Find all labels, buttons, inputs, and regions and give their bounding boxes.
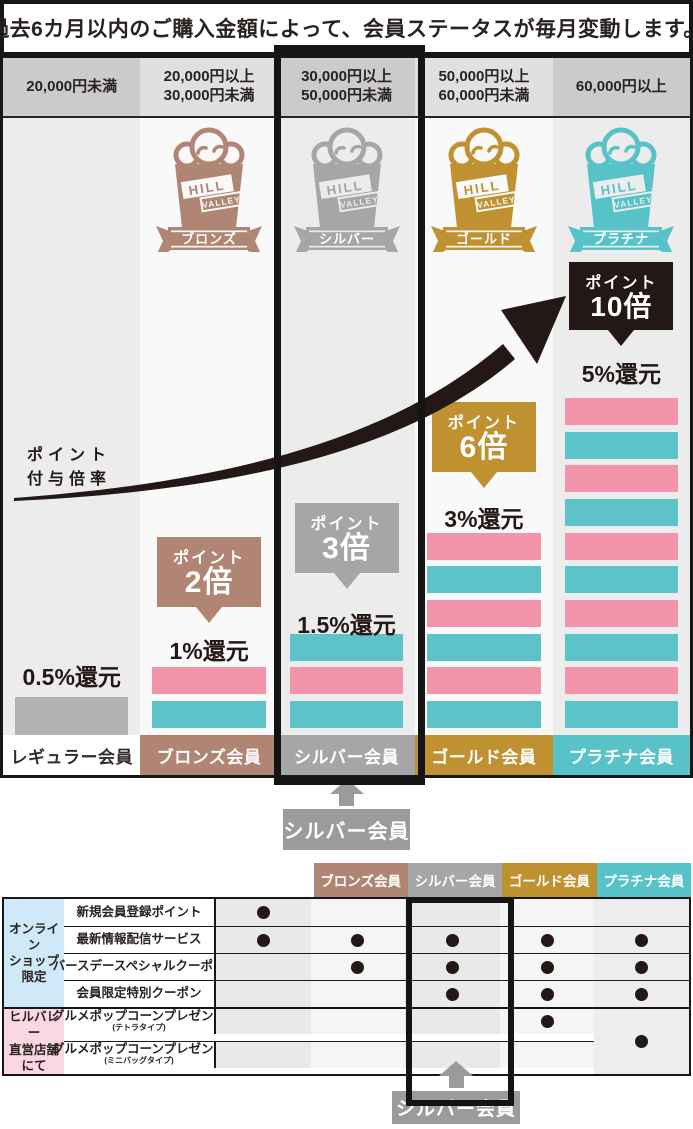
point-bars-regular (15, 118, 128, 735)
axis-label-line1: ポイント (27, 444, 111, 468)
benefit-dot (446, 934, 459, 947)
benefit-dot (635, 988, 648, 1001)
category-label-line: ショップ (9, 953, 59, 969)
benefit-cell (216, 899, 311, 926)
bubble-prefix: ポイント (432, 409, 536, 433)
purchase-range-line: 20,000円以上 (164, 68, 255, 87)
benefit-cell (311, 899, 406, 926)
silver-member-badge: シルバー会員 (392, 1091, 520, 1124)
point-bar-pink (565, 667, 678, 694)
bubble-box: ポイント2倍 (157, 537, 261, 607)
benefit-dot (351, 961, 364, 974)
benefit-name: グルメポップコーンプレゼント (52, 1010, 226, 1024)
bubble-prefix: ポイント (295, 510, 399, 534)
purchase-range-gold: 50,000円以上60,000円未満 (415, 58, 552, 118)
point-bar-pink (427, 600, 540, 627)
bubble-box: ポイント6倍 (432, 402, 536, 472)
point-bar-pink (152, 667, 265, 694)
point-multiplier-bubble-platinum: ポイント10倍 (569, 262, 673, 346)
page-title: 過去6カ月以内のご購入金額によって、会員ステータスが毎月変動します。 (0, 0, 693, 56)
benefit-dot (541, 988, 554, 1001)
point-bar-pink (427, 533, 540, 560)
member-label-bronze: ブロンズ会員 (140, 735, 277, 775)
cashback-rate-regular: 0.5%還元 (3, 658, 140, 692)
point-bar-teal (565, 701, 678, 728)
benefit-name-sub: (テトラタイプ) (112, 1024, 165, 1033)
benefit-cell (405, 953, 500, 980)
benefit-dot (446, 988, 459, 1001)
cashback-rate-platinum: 5%還元 (553, 355, 690, 389)
bubble-box: ポイント10倍 (569, 262, 673, 330)
point-bar-teal (565, 566, 678, 593)
category-label-line: オンライン (4, 921, 64, 954)
benefits-col-header-4: プラチナ会員 (597, 863, 691, 897)
main-chart: 20,000円未満0.5%還元レギュラー会員20,000円以上30,000円未満… (0, 55, 693, 778)
cashback-rate-gold: 3%還元 (415, 500, 552, 534)
benefits-table-header: レギュラー会員ブロンズ会員シルバー会員ゴールド会員プラチナ会員 (219, 863, 691, 897)
bubble-value: 10倍 (569, 293, 673, 322)
bubble-value: 2倍 (157, 568, 261, 599)
benefit-cell (311, 980, 406, 1007)
benefit-cell (405, 1007, 500, 1034)
bubble-value: 6倍 (432, 433, 536, 464)
point-bar-pink (565, 465, 678, 492)
member-label-gold: ゴールド会員 (415, 735, 552, 775)
benefit-cell (500, 899, 595, 926)
benefit-cell (216, 926, 311, 953)
benefit-name: 最新情報配信サービス (76, 933, 201, 947)
benefits-col-header-1: ブロンズ会員 (314, 863, 408, 897)
point-bar-teal (427, 634, 540, 661)
benefit-cell (594, 953, 689, 980)
up-arrow-icon (330, 779, 364, 794)
benefit-dot (351, 934, 364, 947)
bubble-pointer (334, 573, 360, 589)
purchase-range-line: 30,000円未満 (164, 87, 255, 106)
axis-label-line2: 付与倍率 (27, 468, 111, 492)
up-arrow-icon (439, 1061, 473, 1076)
benefit-cell (216, 953, 311, 980)
point-bar-teal (427, 701, 540, 728)
tier-column-silver: 30,000円以上50,000円未満 HILL VALLEY シルバー ポイント… (278, 58, 415, 775)
tier-columns: 20,000円未満0.5%還元レギュラー会員20,000円以上30,000円未満… (3, 58, 690, 775)
purchase-range-line: 20,000円未満 (26, 78, 117, 97)
benefits-col-header-0: レギュラー会員 (219, 863, 314, 897)
silver-member-callout-table: シルバー会員 (392, 1061, 520, 1124)
benefit-dot (541, 961, 554, 974)
bubble-prefix: ポイント (569, 269, 673, 293)
benefit-cell (216, 1007, 311, 1034)
benefit-name-sub: (ミニバッグタイプ) (104, 1057, 173, 1066)
up-arrow-stem (449, 1076, 464, 1088)
benefit-row-label: 会員限定特別クーポン (64, 980, 216, 1007)
bubble-pointer (608, 330, 634, 346)
point-bar-teal (427, 566, 540, 593)
point-bar-teal (565, 634, 678, 661)
benefit-dot (635, 1035, 648, 1048)
benefit-dot (541, 934, 554, 947)
category-label-line: 限定 (21, 969, 46, 985)
benefit-cell (500, 926, 595, 953)
member-label-silver: シルバー会員 (278, 735, 415, 775)
tier-column-body-platinum: HILL VALLEY プラチナ ポイント10倍5%還元 (553, 118, 690, 735)
category-label-line: にて (21, 1058, 46, 1074)
point-multiplier-bubble-bronze: ポイント2倍 (157, 537, 261, 623)
point-bar-pink (565, 398, 678, 425)
benefit-cell (311, 1007, 406, 1034)
point-bar-teal (152, 701, 265, 728)
purchase-range-line: 60,000円以上 (576, 78, 667, 97)
purchase-range-silver: 30,000円以上50,000円未満 (278, 58, 415, 118)
tier-column-body-gold: HILL VALLEY ゴールド ポイント6倍3%還元 (415, 118, 552, 735)
point-bar-pink (290, 667, 403, 694)
cashback-rate-bronze: 1%還元 (140, 632, 277, 666)
bubble-prefix: ポイント (157, 544, 261, 568)
benefit-name: 会員限定特別クーポン (76, 987, 201, 1001)
point-bars-platinum (565, 118, 678, 728)
benefit-dot (541, 1015, 554, 1028)
silver-member-badge: シルバー会員 (283, 809, 410, 850)
member-label-platinum: プラチナ会員 (553, 735, 690, 775)
purchase-range-line: 50,000円未満 (301, 87, 392, 106)
benefit-category-0: オンラインショップ限定 (4, 899, 64, 1007)
tier-column-body-silver: HILL VALLEY シルバー ポイント3倍1.5%還元 (278, 118, 415, 735)
purchase-range-bronze: 20,000円以上30,000円未満 (140, 58, 277, 118)
benefit-name: グルメポップコーンプレゼント (52, 1043, 226, 1057)
benefit-cell (594, 899, 689, 926)
axis-label-point-multiplier: ポイント 付与倍率 (27, 444, 111, 492)
benefits-col-header-3: ゴールド会員 (502, 863, 596, 897)
purchase-range-platinum: 60,000円以上 (553, 58, 690, 118)
benefit-cell (405, 899, 500, 926)
tier-column-regular: 20,000円未満0.5%還元レギュラー会員 (3, 58, 140, 775)
benefit-cell (594, 926, 689, 953)
up-arrow-stem (339, 794, 354, 806)
membership-status-infographic: 過去6カ月以内のご購入金額によって、会員ステータスが毎月変動します。 20,00… (0, 0, 693, 1129)
benefit-cell (500, 980, 595, 1007)
bubble-box: ポイント3倍 (295, 503, 399, 573)
benefits-table: レギュラー会員ブロンズ会員シルバー会員ゴールド会員プラチナ会員 オンラインショッ… (2, 858, 691, 1076)
benefit-name: バースデースペシャルクーポン (53, 960, 226, 974)
tier-column-body-bronze: HILL VALLEY ブロンズ ポイント2倍1%還元 (140, 118, 277, 735)
tier-column-bronze: 20,000円以上30,000円未満 HILL VALLEY ブロンズ ポイント… (140, 58, 277, 775)
point-bar-gray (15, 697, 128, 735)
silver-member-callout: シルバー会員 (283, 779, 410, 850)
purchase-range-line: 60,000円未満 (438, 87, 529, 106)
benefit-row-label: グルメポップコーンプレゼント(テトラタイプ) (64, 1007, 216, 1034)
point-bar-teal (565, 432, 678, 459)
point-bar-teal (565, 499, 678, 526)
benefit-cell (405, 980, 500, 1007)
benefit-row-label: 新規会員登録ポイント (64, 899, 216, 926)
benefit-cell (405, 926, 500, 953)
point-bar-pink (427, 667, 540, 694)
benefit-cell (311, 953, 406, 980)
benefit-cell-merged (594, 1007, 689, 1074)
benefit-dot (446, 961, 459, 974)
bubble-pointer (196, 607, 222, 623)
benefit-cell (216, 980, 311, 1007)
benefit-row-label: 最新情報配信サービス (64, 926, 216, 953)
benefits-col-header-2: シルバー会員 (408, 863, 502, 897)
benefit-cell (594, 980, 689, 1007)
benefit-cell (311, 1041, 406, 1068)
benefit-cell (500, 953, 595, 980)
benefit-name: 新規会員登録ポイント (76, 906, 201, 920)
purchase-range-line: 30,000円以上 (301, 68, 392, 87)
cashback-rate-silver: 1.5%還元 (278, 606, 415, 640)
benefit-dot (635, 934, 648, 947)
benefit-dot (257, 906, 270, 919)
benefit-dot (257, 934, 270, 947)
point-bar-pink (565, 600, 678, 627)
point-bar-teal (290, 701, 403, 728)
bubble-value: 3倍 (295, 534, 399, 565)
point-multiplier-bubble-gold: ポイント6倍 (432, 402, 536, 488)
purchase-range-line: 50,000円以上 (438, 68, 529, 87)
purchase-range-regular: 20,000円未満 (3, 58, 140, 118)
bubble-pointer (471, 472, 497, 488)
tier-column-platinum: 60,000円以上 HILL VALLEY プラチナ ポイント10倍5%還元プラ… (553, 58, 690, 775)
benefit-cell (500, 1007, 595, 1034)
benefit-cell (311, 926, 406, 953)
benefit-cell (216, 1041, 311, 1068)
benefits-table-body: オンラインショップ限定新規会員登録ポイント最新情報配信サービスバースデースペシャ… (2, 897, 691, 1076)
member-label-regular: レギュラー会員 (3, 735, 140, 775)
benefit-row-label: バースデースペシャルクーポン (64, 953, 216, 980)
point-bar-pink (565, 533, 678, 560)
tier-column-gold: 50,000円以上60,000円未満 HILL VALLEY ゴールド ポイント… (415, 58, 552, 775)
tier-column-body-regular: 0.5%還元 (3, 118, 140, 735)
point-multiplier-bubble-silver: ポイント3倍 (295, 503, 399, 589)
benefit-dot (635, 961, 648, 974)
benefit-row-label: グルメポップコーンプレゼント(ミニバッグタイプ) (64, 1041, 216, 1068)
